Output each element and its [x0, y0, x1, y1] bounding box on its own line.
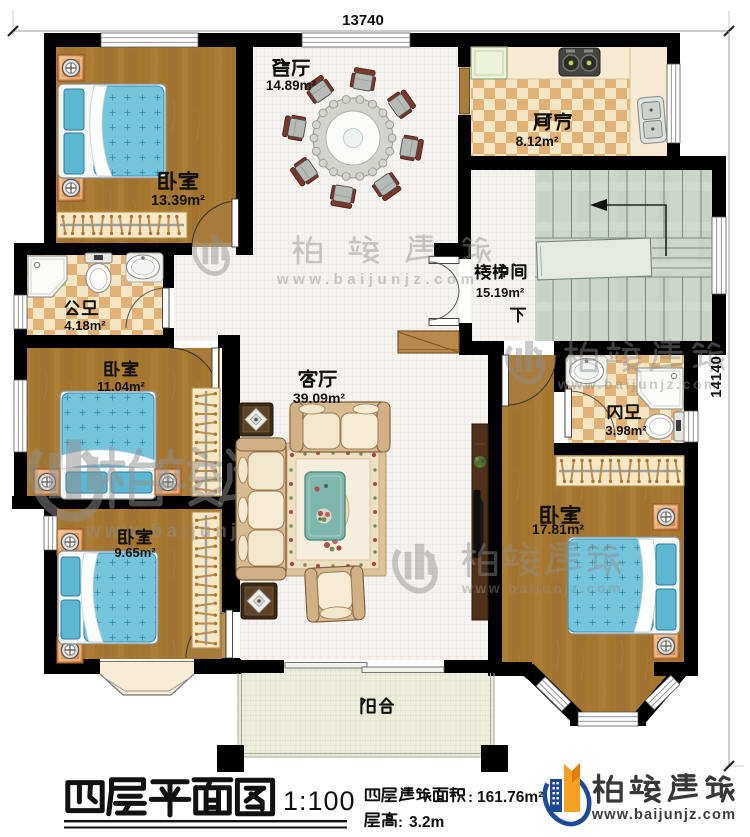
svg-text:14140: 14140 [708, 356, 725, 398]
svg-text:3.2m: 3.2m [409, 814, 444, 831]
svg-text::: : [398, 814, 403, 831]
svg-text:3.98m²: 3.98m² [605, 423, 647, 438]
svg-text:13740: 13740 [342, 12, 384, 29]
svg-text:13.39m²: 13.39m² [151, 193, 205, 209]
svg-text:8.12m²: 8.12m² [516, 134, 559, 149]
svg-text:161.76m²: 161.76m² [477, 789, 543, 806]
svg-text:1:100: 1:100 [283, 786, 356, 816]
svg-text::: : [468, 789, 473, 806]
svg-text:www.baijunjz.com: www.baijunjz.com [276, 271, 478, 288]
svg-text:www.baijunjz.com: www.baijunjz.com [557, 376, 719, 392]
svg-text:14.89m²: 14.89m² [266, 78, 317, 93]
svg-text:9.65m²: 9.65m² [114, 545, 156, 560]
svg-text:39.09m²: 39.09m² [293, 390, 345, 406]
svg-text:11.04m²: 11.04m² [97, 379, 145, 394]
svg-text:4.18m²: 4.18m² [64, 318, 106, 333]
svg-text:www.baijunjz.com: www.baijunjz.com [461, 580, 623, 596]
svg-text:15.19m²: 15.19m² [476, 285, 525, 300]
svg-text:17.81m²: 17.81m² [532, 521, 584, 537]
svg-text:www.baijunjz.com: www.baijunjz.com [591, 807, 736, 823]
